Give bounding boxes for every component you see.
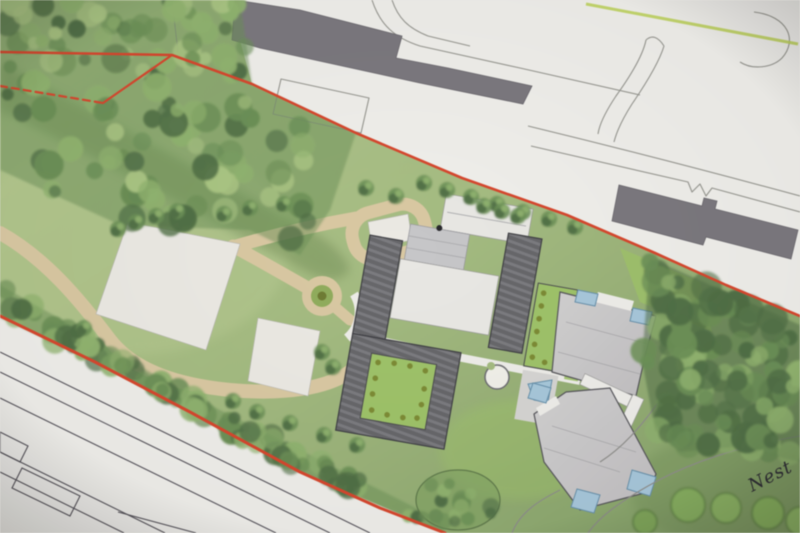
site-plan-photo: Nest (0, 0, 800, 533)
ornamental-tree (283, 198, 290, 205)
ornamental-tree (135, 216, 142, 223)
ornamental-tree (155, 210, 162, 217)
tree-canopy-blob (21, 70, 47, 96)
tree-canopy-blob (94, 28, 112, 46)
ornamental-tree (470, 191, 477, 198)
pond-notch (487, 362, 495, 370)
tree-canopy-blob (86, 162, 103, 179)
tree-canopy-blob (217, 140, 243, 166)
ornamental-tree (395, 190, 402, 197)
tree-canopy-blob (103, 155, 116, 168)
tree-canopy-blob (101, 44, 130, 73)
ornamental-tree (356, 439, 363, 446)
tree-canopy-blob (278, 226, 304, 252)
ornamental-tree (332, 361, 339, 368)
ornamental-tree (323, 429, 330, 436)
tree-canopy-blob (236, 38, 254, 56)
ornamental-tree (117, 223, 124, 230)
tree-canopy-blob (299, 213, 316, 230)
tree-canopy-blob (106, 123, 124, 141)
tree-canopy-blob (666, 298, 694, 326)
ornamental-tree (289, 417, 296, 424)
tree-canopy-blob (228, 412, 240, 424)
tree-canopy-blob (266, 130, 288, 152)
tree-canopy-blob (133, 132, 151, 150)
tree-canopy-blob (465, 488, 476, 499)
tree-canopy-blob (49, 27, 62, 40)
tree-canopy-blob (192, 154, 219, 181)
tree-canopy-blob (36, 35, 49, 48)
tree-canopy-blob (119, 19, 144, 44)
tree-canopy-blob (482, 498, 500, 516)
tree-canopy-blob (89, 5, 107, 23)
tree-canopy-blob (220, 57, 237, 74)
tree-canopy-blob (266, 160, 292, 186)
tree-canopy-blob (11, 299, 32, 320)
tree-canopy-blob (58, 136, 83, 161)
tree-canopy-blob (13, 103, 32, 122)
tree-canopy-blob (336, 473, 349, 486)
ornamental-tree (483, 200, 490, 207)
tree-canopy-blob (79, 53, 91, 65)
ornamental-tree (321, 346, 328, 353)
ornamental-tree (574, 221, 581, 228)
tree-canopy-blob (49, 185, 61, 197)
ornamental-tree (83, 322, 90, 329)
turning-circle-center (318, 292, 327, 301)
tree-canopy-blob (631, 338, 657, 364)
ornamental-tree (548, 213, 555, 220)
ornamental-tree (423, 177, 430, 184)
tree-canopy-blob (138, 180, 161, 203)
ornamental-tree (176, 205, 183, 212)
tree-canopy-blob (764, 433, 779, 448)
tree-canopy-blob (667, 328, 698, 359)
tree-canopy-blob (2, 88, 14, 100)
tree-canopy-blob (290, 133, 315, 158)
tree-canopy-blob (696, 433, 720, 457)
tree-canopy-blob (698, 403, 718, 423)
tree-canopy-blob (124, 152, 144, 172)
ornamental-tree (249, 202, 256, 209)
tree-canopy-blob (786, 379, 800, 393)
tree-canopy-blob (767, 407, 794, 434)
ornamental-tree (446, 184, 453, 191)
tree-canopy-blob (454, 499, 469, 514)
ornamental-tree (223, 208, 230, 215)
tree-canopy-blob (31, 96, 57, 122)
tree-canopy-blob (188, 138, 204, 154)
tree-canopy-blob (680, 369, 701, 390)
tree-canopy-blob (761, 318, 785, 342)
tree-canopy-blob (444, 478, 455, 489)
tree-canopy-blob (171, 103, 184, 116)
ornamental-tree (365, 182, 372, 189)
tree-canopy-blob (182, 32, 202, 52)
tree-canopy-blob (727, 370, 748, 391)
tree-canopy-blob (424, 478, 438, 492)
tree-canopy-blob (419, 511, 429, 521)
ornamental-tree (501, 205, 508, 212)
tree-canopy-blob (219, 22, 233, 36)
ornamental-tree (256, 406, 263, 413)
tree-canopy-blob (68, 20, 86, 38)
tree-canopy-blob (234, 164, 253, 183)
tree-canopy-blob (143, 73, 172, 102)
ornamental-tree (232, 395, 239, 402)
tree-canopy-blob (238, 96, 251, 109)
tree-canopy-blob (191, 12, 212, 33)
tree-canopy-blob (449, 516, 460, 527)
specimen-tree-canopy (416, 470, 500, 530)
ornamental-tree (517, 210, 524, 217)
tree-canopy-blob (698, 390, 714, 406)
tree-canopy-blob (661, 275, 676, 290)
tree-canopy-blob (4, 60, 17, 73)
tree-canopy-blob (199, 52, 211, 64)
tree-canopy-blob (751, 347, 768, 364)
tree-canopy-blob (107, 16, 120, 29)
tree-canopy-blob (429, 509, 444, 524)
tree-canopy-blob (143, 18, 168, 43)
